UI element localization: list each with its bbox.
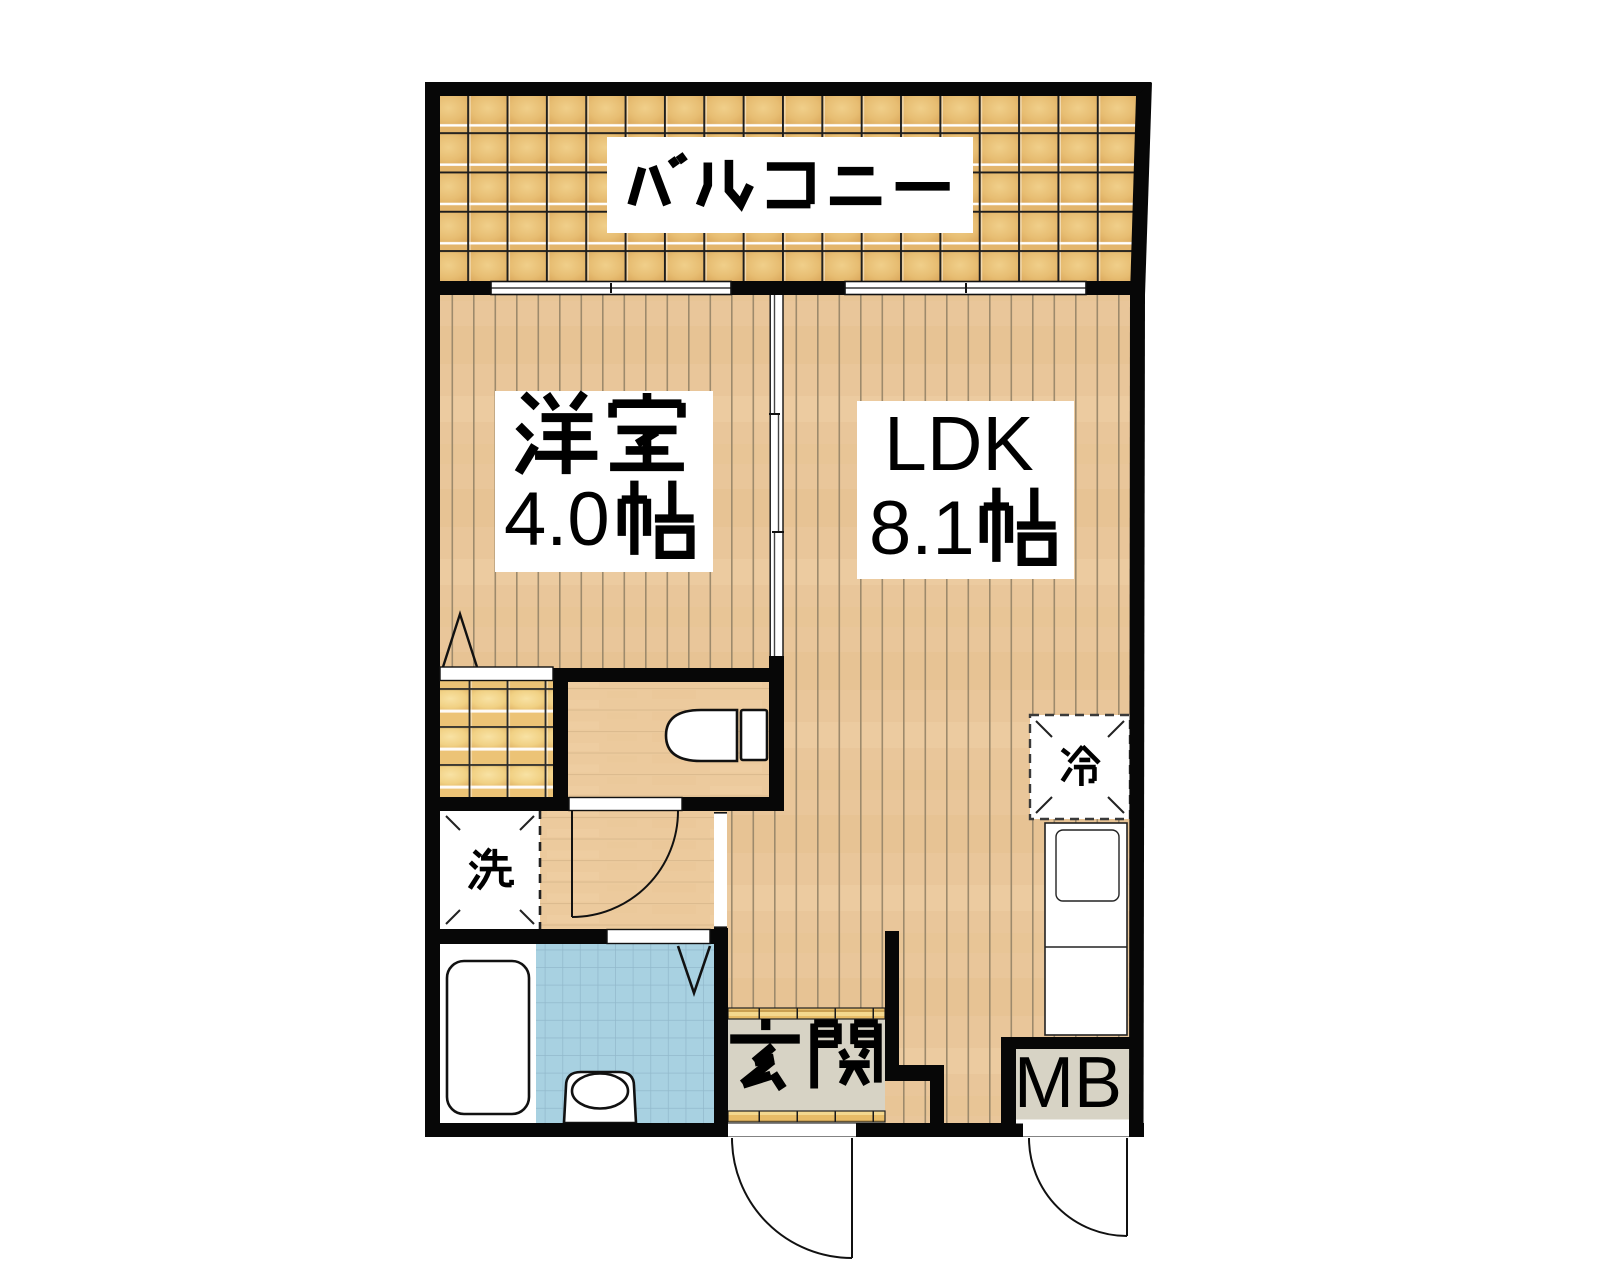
svg-text:8.1: 8.1 [869,486,975,571]
svg-text:MB: MB [1014,1043,1122,1123]
svg-text:LDK: LDK [884,401,1034,487]
svg-text:4.0: 4.0 [504,477,610,562]
